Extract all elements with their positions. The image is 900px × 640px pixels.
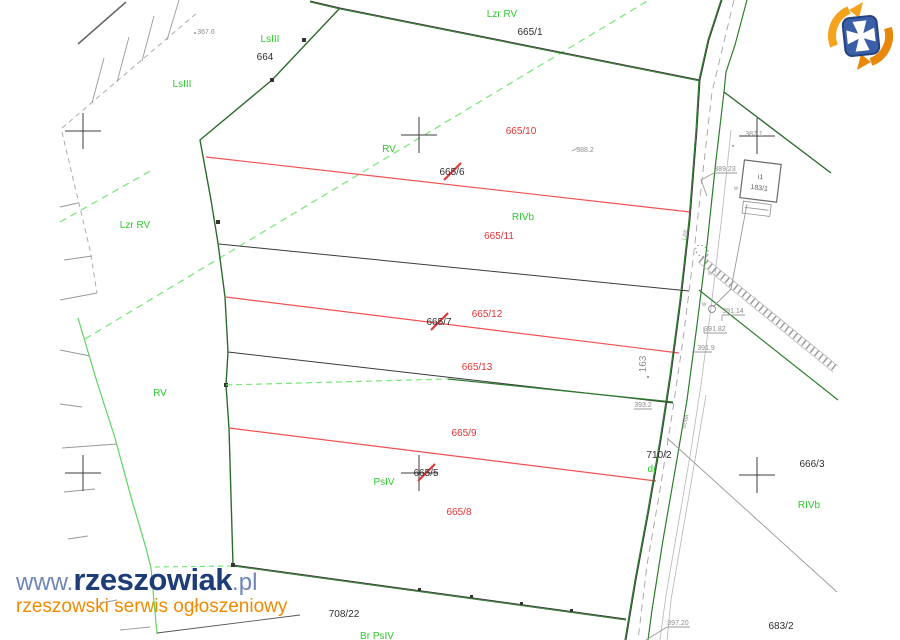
w-marker-1: w	[733, 186, 739, 192]
parcel-label-665-1: 665/1	[517, 27, 542, 38]
elev-397-20: 397.20	[667, 620, 689, 627]
parcel-label-665-5-cancelled: 665/5	[413, 468, 438, 479]
landuse-dashed-lines	[60, 0, 649, 339]
site-url: www.rzeszowiak.pl	[16, 564, 287, 595]
parcel-label-665-8: 665/8	[446, 507, 471, 518]
landuse-rv-low: RV	[153, 388, 167, 399]
parcel-labels-black: 664 665/1 710/2 666/3 683/2 708/22	[257, 27, 825, 632]
elev-388-2: 388.2	[576, 147, 594, 154]
parcel-label-683-2: 683/2	[768, 621, 793, 632]
parcel-label-665-6-cancelled: 665/6	[439, 167, 464, 178]
landuse-lsiii-top: LsIII	[261, 34, 280, 45]
parcel-label-665-10: 665/10	[506, 126, 537, 137]
northeast-boundary	[724, 92, 831, 173]
landuse-rivb-mid: RIVb	[512, 212, 535, 223]
survey-grid-crosses	[65, 113, 775, 493]
elev-389-23: 389.23	[714, 166, 736, 173]
parcel-label-664: 664	[257, 52, 274, 63]
parcel-label-665-9: 665/9	[451, 428, 476, 439]
landuse-dr: dr	[648, 464, 658, 475]
cadastral-map: i1 183/1 664 665/1 710/2	[0, 0, 900, 640]
road-number-163: 163	[638, 355, 649, 372]
elev-367-6: 367.6	[197, 29, 215, 36]
parcel-label-710-2: 710/2	[646, 450, 671, 461]
site-url-prefix: www.	[16, 569, 73, 596]
parcel-label-665-13: 665/13	[462, 362, 493, 373]
elev-387-1: 387.1	[745, 131, 763, 138]
parcel-label-665-12: 665/12	[472, 309, 503, 320]
landuse-br-psiv: Br PsIV	[360, 631, 394, 640]
rzeszowiak-logo	[832, 2, 889, 70]
parcel-labels-red: 665/10 665/11 665/12 665/13 665/9 665/8	[446, 126, 536, 518]
site-name: rzeszowiak	[73, 562, 232, 597]
building-label-line1: i1	[757, 174, 763, 182]
elev-391-82: 391.82	[704, 326, 726, 333]
parcel-label-665-11: 665/11	[484, 231, 514, 242]
w-marker-3: w	[701, 302, 707, 308]
cadastral-map-page: i1 183/1 664 665/1 710/2	[0, 0, 900, 640]
parcel-665-boundaries	[200, 1, 700, 620]
elev-393-2: 393.2	[634, 402, 652, 409]
w-marker-2: w	[707, 271, 713, 277]
landuse-lzr-rv-top: Lzr RV	[487, 9, 518, 20]
small-survey-ticks	[194, 32, 734, 640]
elev-391-9: 391.9	[697, 345, 715, 352]
embankment-hatch	[693, 243, 838, 400]
landuse-lzr-rv-left: Lzr RV	[120, 220, 151, 231]
site-tld: .pl	[232, 569, 257, 596]
parcel-label-708-22: 708/22	[329, 609, 360, 620]
elev-391-14: 391.14	[722, 308, 744, 315]
parcel-label-665-7-cancelled: 665/7	[426, 317, 451, 328]
landuse-rivb-low: RIVb	[798, 500, 821, 511]
site-watermark: www.rzeszowiak.pl rzeszowski serwis ogło…	[16, 564, 287, 616]
utility-label-woda: woda	[681, 414, 690, 431]
adjacent-parcels-topleft	[60, 0, 198, 300]
landuse-rv-mid: RV	[382, 144, 396, 155]
parcel-label-666-3: 666/3	[799, 459, 824, 470]
landuse-lsiii-left: LsIII	[173, 79, 192, 90]
site-tagline: rzeszowski serwis ogłoszeniowy	[16, 597, 287, 616]
landuse-labels: Lzr RV LsIII LsIII Lzr RV RV RIVb RV PsI…	[120, 9, 821, 640]
landuse-psiv: PsIV	[373, 477, 394, 488]
